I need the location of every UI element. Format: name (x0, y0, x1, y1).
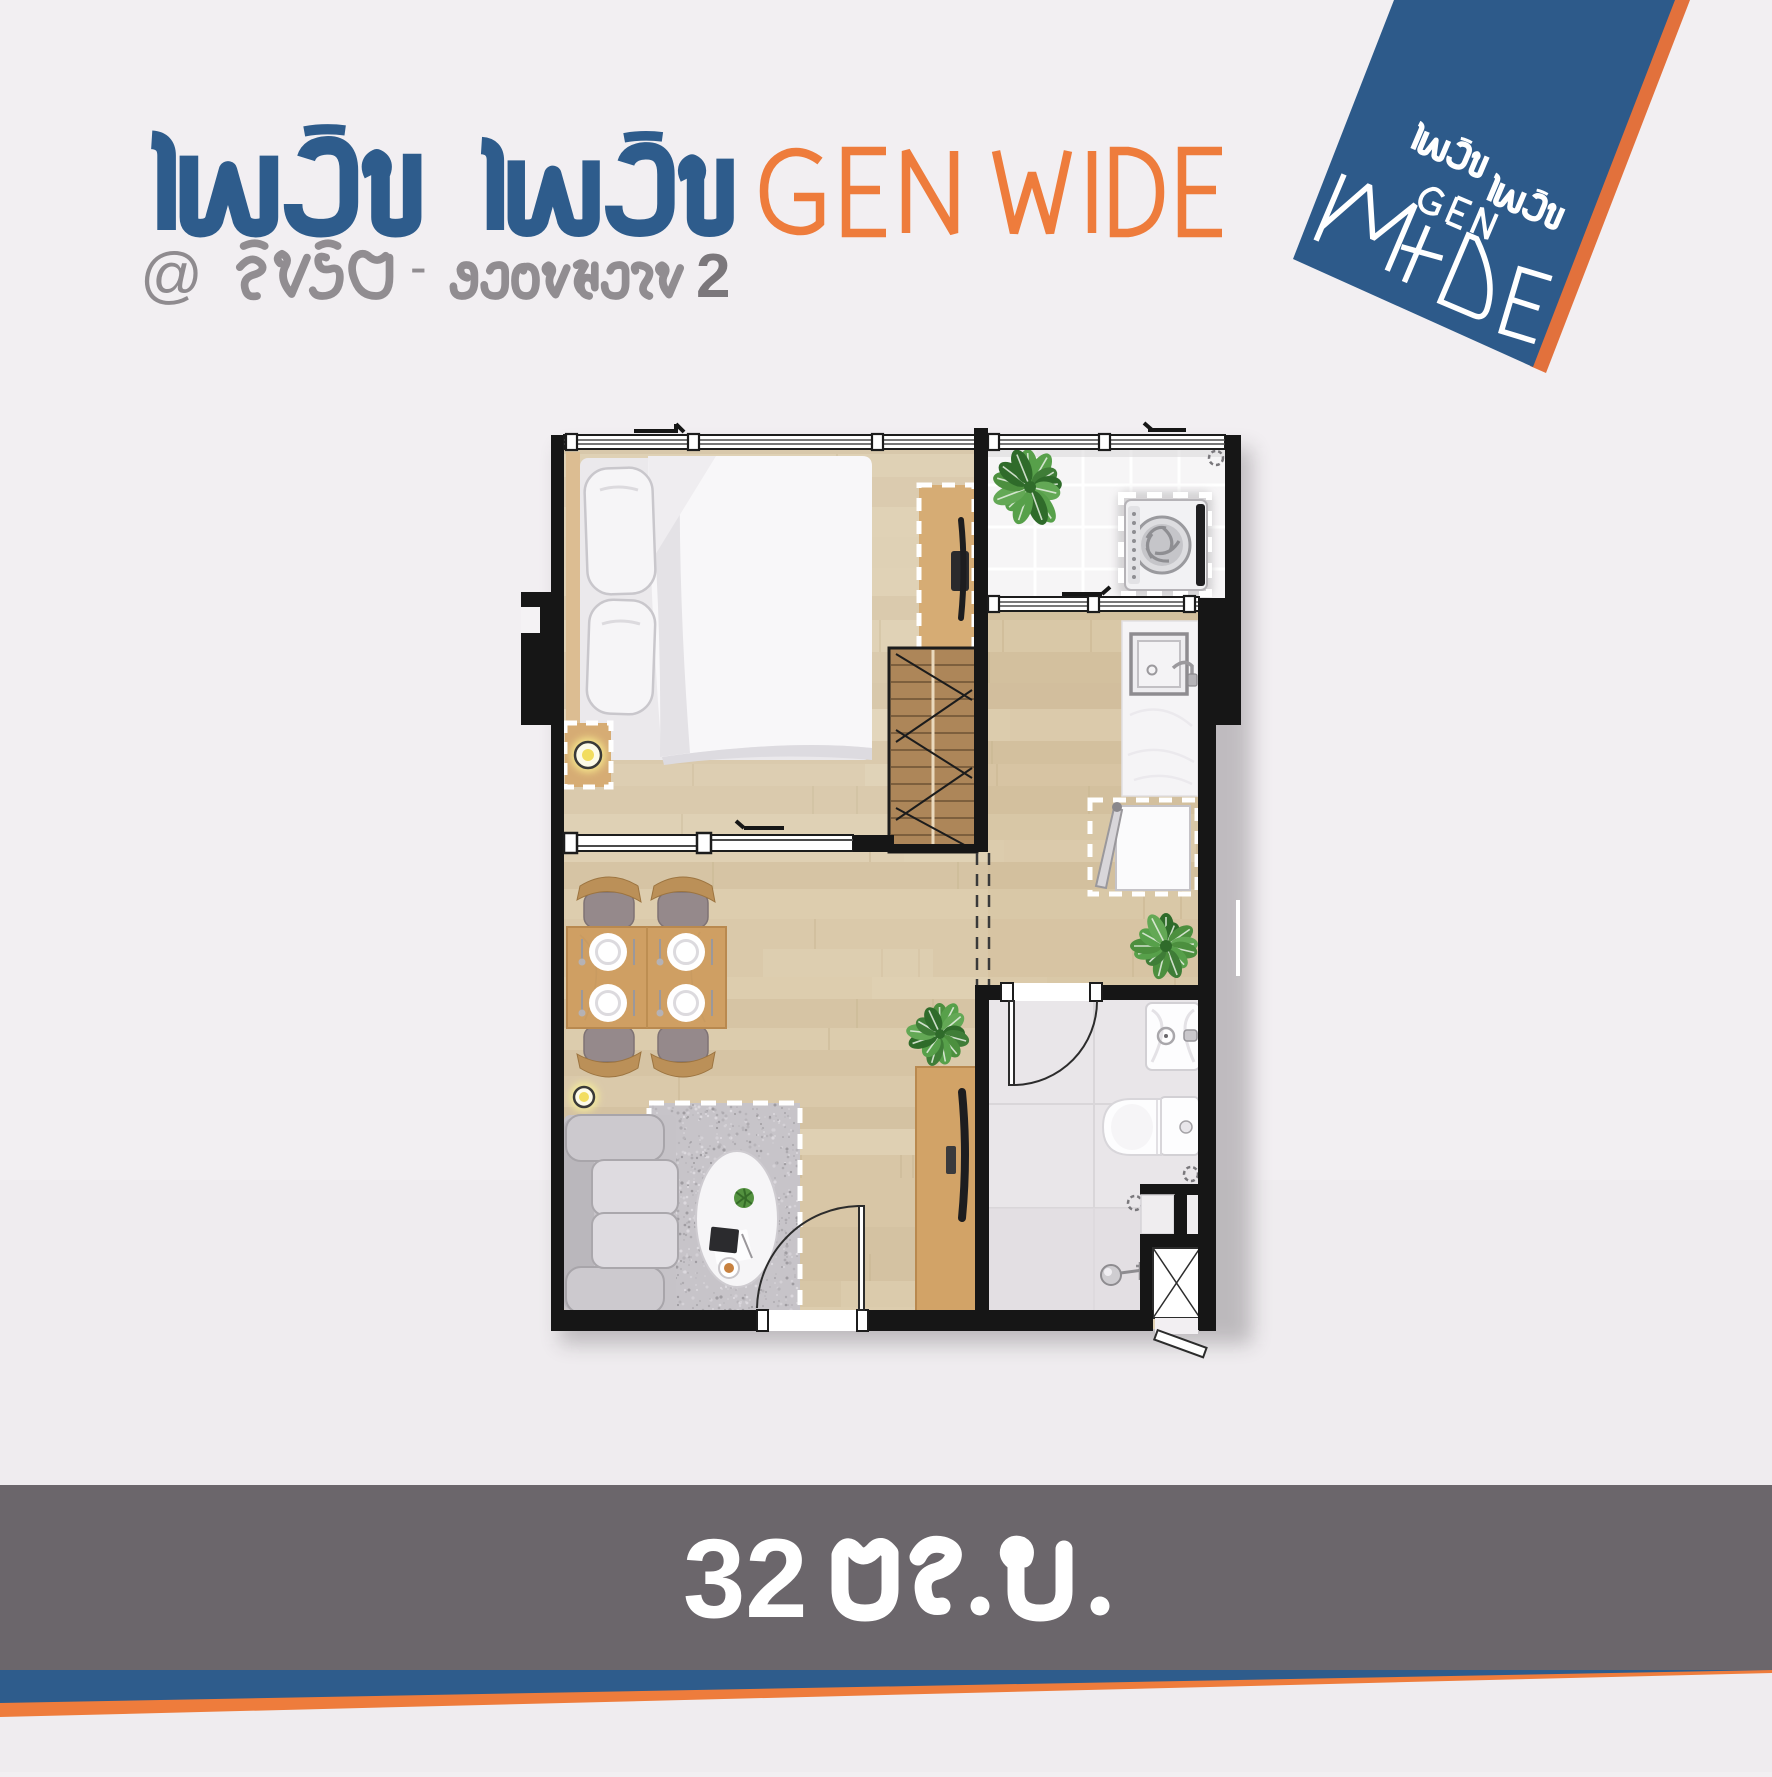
svg-text:@: @ (140, 241, 203, 310)
svg-text:32: 32 (683, 1516, 808, 1641)
svg-text:-: - (410, 239, 427, 295)
svg-text:2: 2 (696, 242, 730, 311)
